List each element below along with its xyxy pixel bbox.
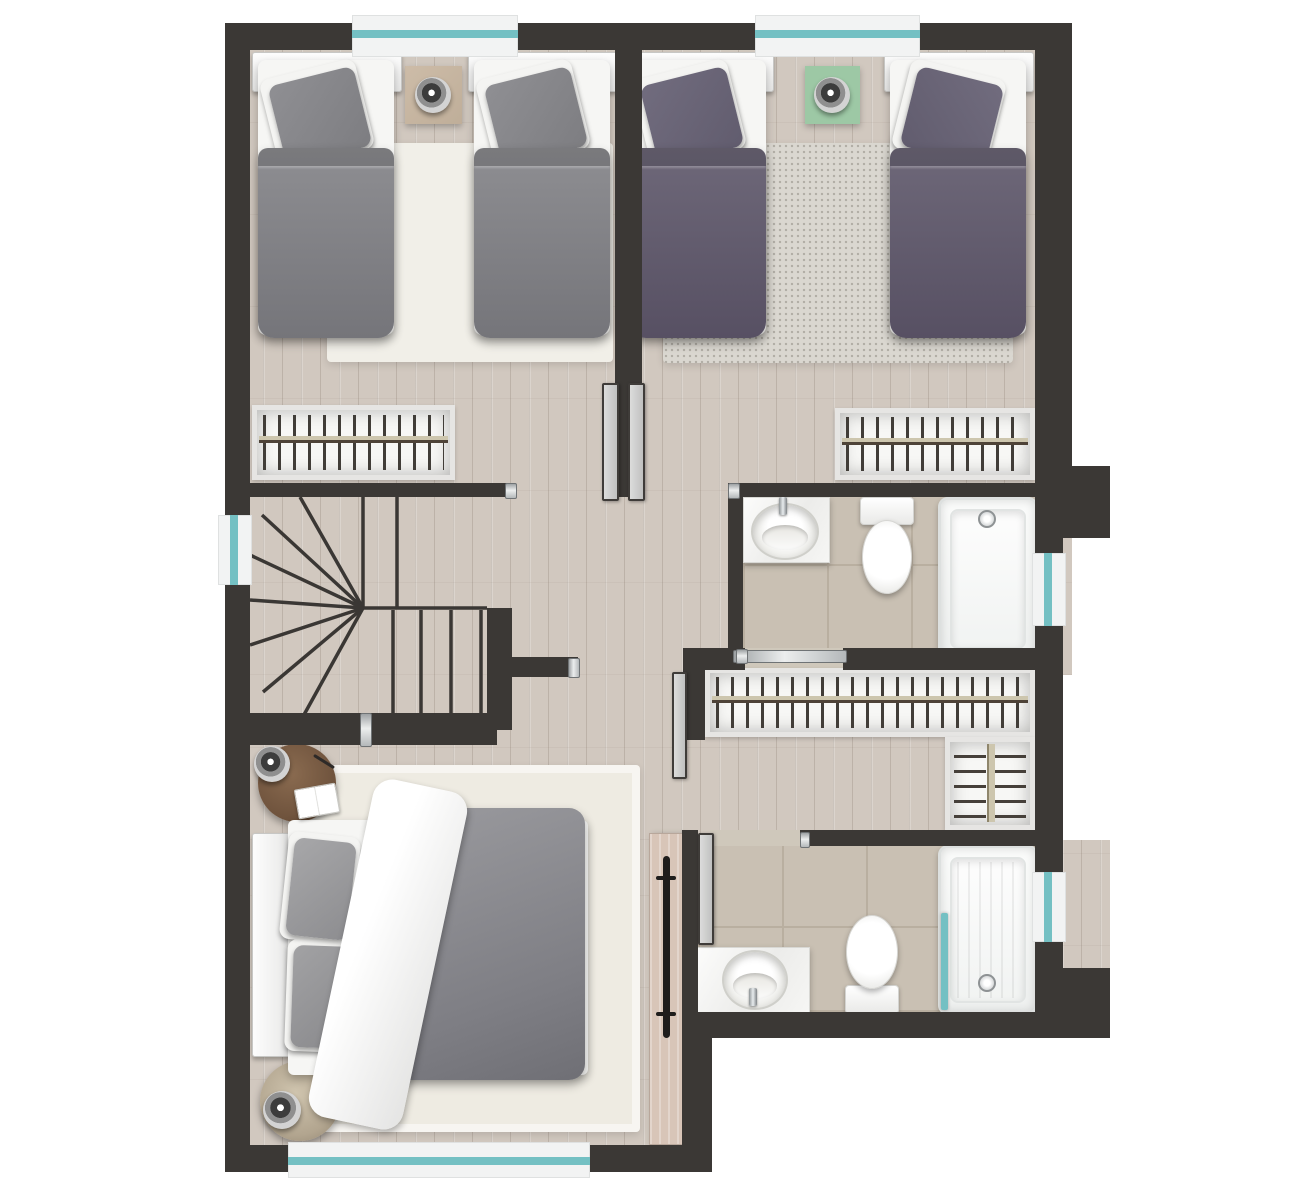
floor-plan xyxy=(0,0,1300,1200)
shelf-stack-left xyxy=(954,748,986,818)
shower-drain xyxy=(978,974,996,992)
shelf-post xyxy=(987,744,995,822)
wall-jamb xyxy=(360,713,372,747)
wall-corridor-bottom xyxy=(800,830,1035,846)
wall-bathroom-top-left xyxy=(728,497,743,663)
wall-east-bump xyxy=(1035,466,1110,538)
door-pull-handle xyxy=(663,856,670,1038)
wall-bedroom-left-south xyxy=(250,483,513,497)
toilet-bowl xyxy=(846,915,898,989)
faucet xyxy=(779,497,787,515)
wall-jamb xyxy=(728,483,740,499)
door-jamb xyxy=(800,832,810,848)
duvet-purple xyxy=(630,148,766,338)
door-pull-crossbar xyxy=(656,876,676,880)
wall-bathroom-top-bottom-r xyxy=(843,648,1035,670)
duvet-purple xyxy=(890,148,1026,338)
duvet-gray xyxy=(258,148,394,338)
door-pull-crossbar xyxy=(656,1012,676,1016)
wall-south-bathroom xyxy=(682,1012,1110,1038)
table-lamp xyxy=(814,77,850,113)
wall-bedroom-divider xyxy=(615,50,642,385)
toilet-bowl xyxy=(862,520,912,594)
table-lamp xyxy=(415,77,451,113)
window-north-left xyxy=(352,15,518,57)
table-lamp xyxy=(254,746,290,782)
winder-staircase xyxy=(225,480,515,735)
wall-west xyxy=(225,23,250,1172)
sliding-door-bathroom-top xyxy=(733,650,847,663)
tub-faucet xyxy=(978,510,996,528)
door-leaf-bedroom-left xyxy=(602,383,619,501)
wall-master-right-upper xyxy=(682,830,698,1012)
wall-bedroom-right-south xyxy=(728,483,1035,497)
door-leaf-bathroom-bottom xyxy=(698,833,714,945)
window-west-stair xyxy=(218,515,252,585)
door-leaf-bedroom-right xyxy=(628,383,645,501)
wardrobe-closet xyxy=(835,408,1035,480)
long-wardrobe xyxy=(705,668,1035,737)
door-leaf-walk-in-closet xyxy=(672,672,687,779)
shower-glass-screen xyxy=(941,913,948,1010)
duvet-gray xyxy=(474,148,610,338)
table-lamp xyxy=(263,1091,301,1129)
bathroom-bottom-door-threshold xyxy=(710,830,800,846)
window-north-right xyxy=(755,15,920,57)
wall-stair-guard-stub xyxy=(497,657,578,677)
faucet xyxy=(749,988,757,1006)
toilet-tank xyxy=(845,985,899,1014)
wardrobe-closet xyxy=(252,405,455,480)
wall-master-right-lower xyxy=(682,1012,712,1172)
door-jamb xyxy=(736,649,748,664)
shelf-stack-right xyxy=(994,754,1026,818)
linen-shelves xyxy=(945,737,1035,830)
wall-jamb xyxy=(568,658,580,678)
wall-jamb xyxy=(505,483,517,499)
window-east-bathroom-top xyxy=(1032,553,1066,626)
window-east-bathroom-bottom xyxy=(1032,872,1066,942)
wall-east-upper xyxy=(1035,23,1072,466)
window-south-master xyxy=(288,1142,590,1178)
